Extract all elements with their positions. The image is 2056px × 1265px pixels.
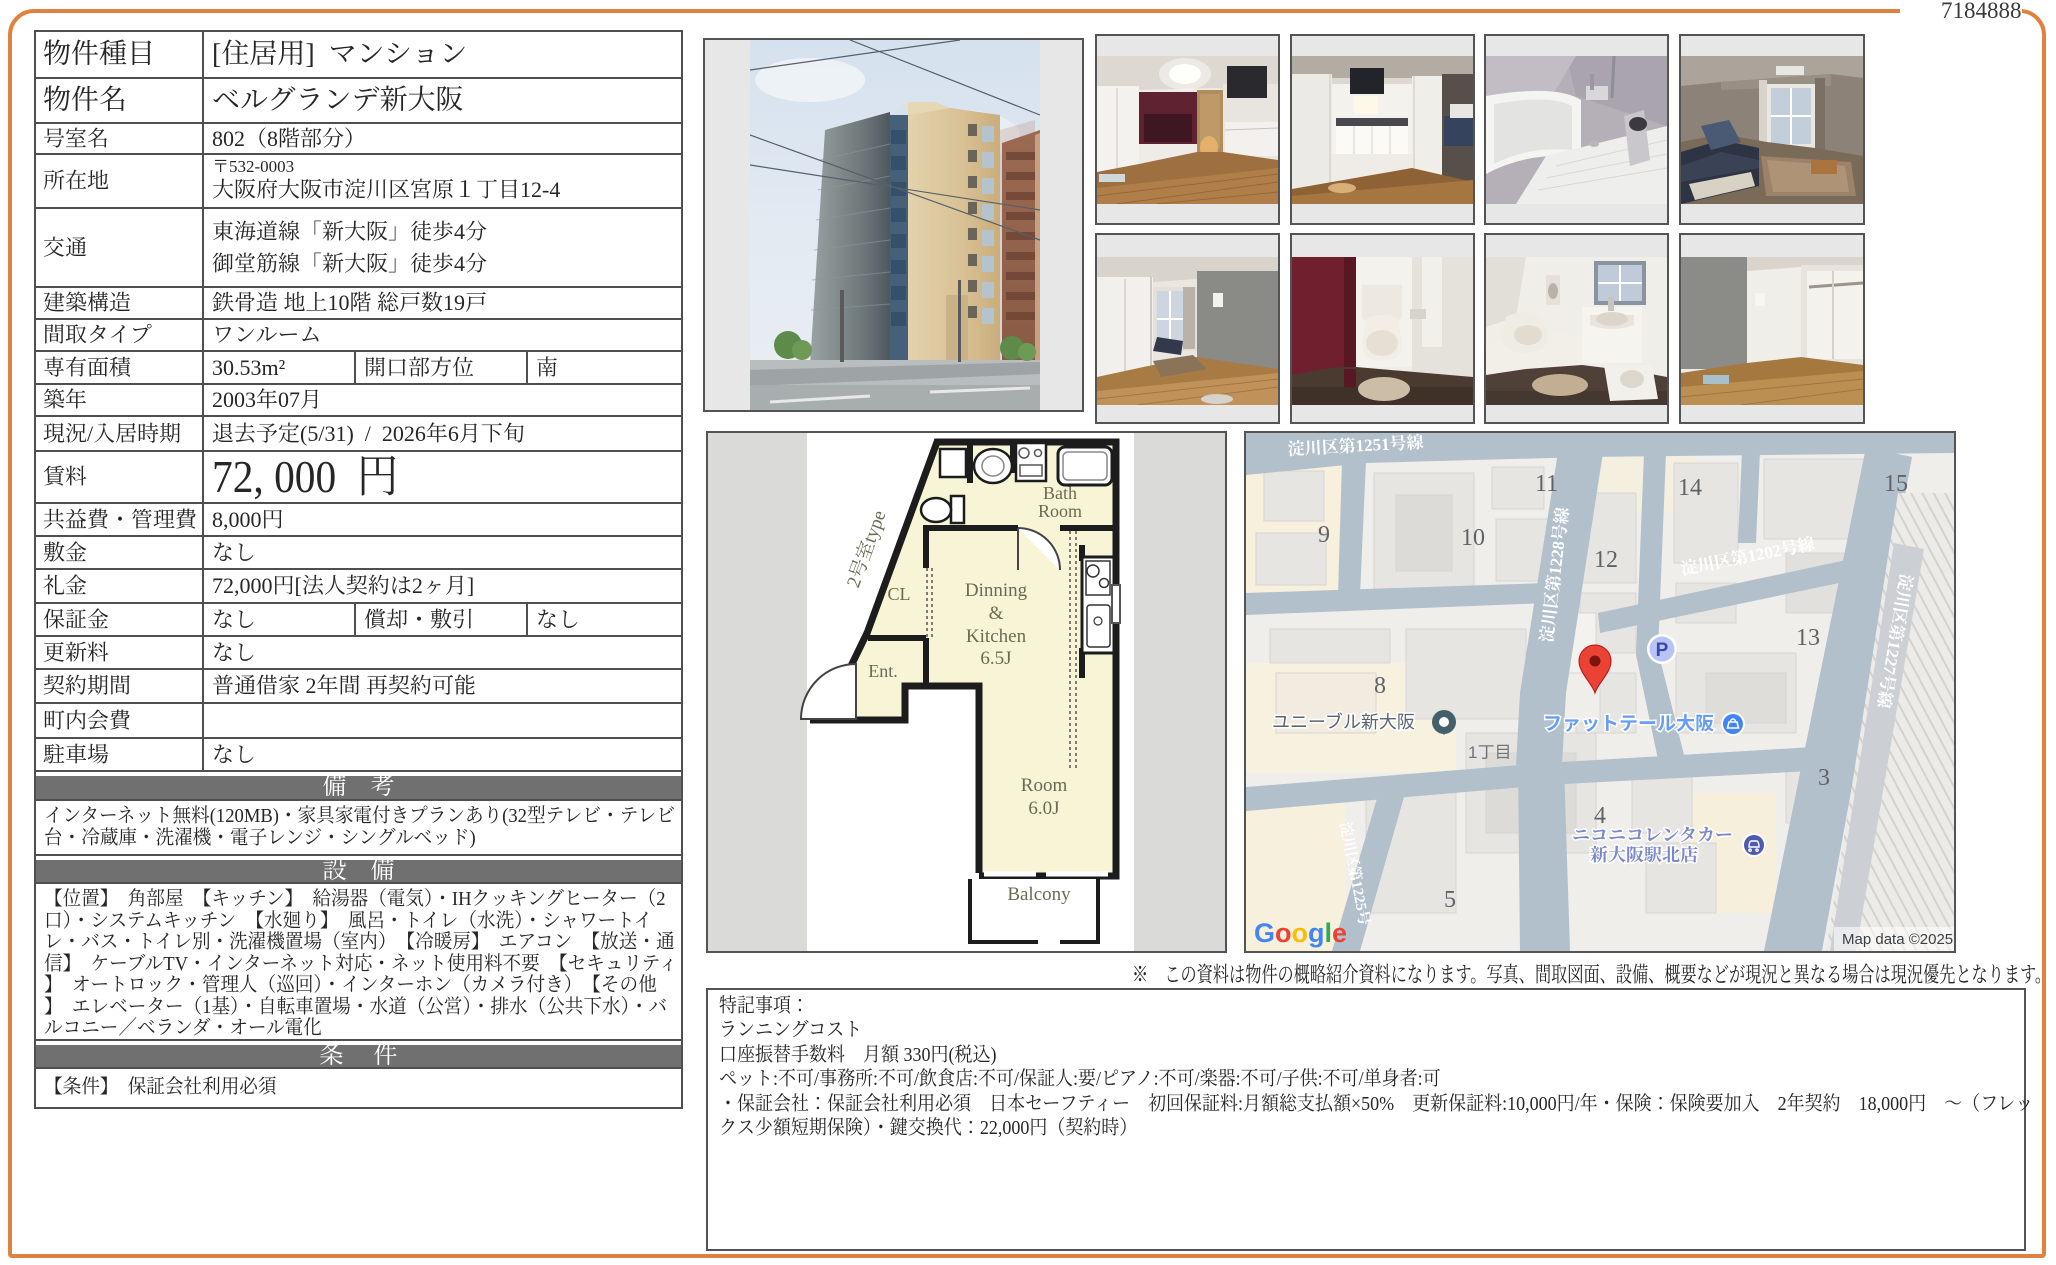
- svg-text:11: 11: [1535, 471, 1558, 497]
- svg-text:Map data ©2025: Map data ©2025: [1842, 931, 1953, 948]
- svg-text:14: 14: [1678, 475, 1702, 501]
- svg-text:ファットテール大阪: ファットテール大阪: [1543, 714, 1714, 735]
- svg-text:Room: Room: [1021, 775, 1068, 796]
- svg-text:1丁目: 1丁目: [1468, 743, 1511, 762]
- svg-text:Room: Room: [1038, 501, 1082, 521]
- svg-text:Google: Google: [1254, 918, 1347, 948]
- svg-text:Balcony: Balcony: [1007, 884, 1071, 905]
- svg-text:8: 8: [1374, 673, 1386, 699]
- svg-text:ユニーブル新大阪: ユニーブル新大阪: [1272, 712, 1415, 732]
- svg-text:13: 13: [1796, 625, 1820, 651]
- svg-text:新大阪駅北店: 新大阪駅北店: [1590, 845, 1698, 865]
- svg-text:ニコニコレンタカー: ニコニコレンタカー: [1572, 825, 1733, 845]
- svg-text:CL: CL: [887, 584, 910, 604]
- svg-text:6.5J: 6.5J: [980, 648, 1011, 669]
- svg-text:12: 12: [1594, 547, 1618, 573]
- svg-text:Dinning: Dinning: [965, 580, 1028, 601]
- svg-text:6.0J: 6.0J: [1028, 798, 1059, 819]
- svg-text:15: 15: [1884, 471, 1908, 497]
- svg-text:Kitchen: Kitchen: [966, 626, 1027, 647]
- svg-text:5: 5: [1444, 887, 1456, 913]
- svg-text:P: P: [1656, 640, 1669, 661]
- svg-text:3: 3: [1818, 765, 1830, 791]
- svg-text:Ent.: Ent.: [868, 661, 898, 681]
- svg-text:9: 9: [1318, 522, 1330, 548]
- svg-text:Bath: Bath: [1043, 483, 1077, 503]
- svg-text:10: 10: [1461, 525, 1485, 551]
- svg-text:&: &: [989, 603, 1004, 624]
